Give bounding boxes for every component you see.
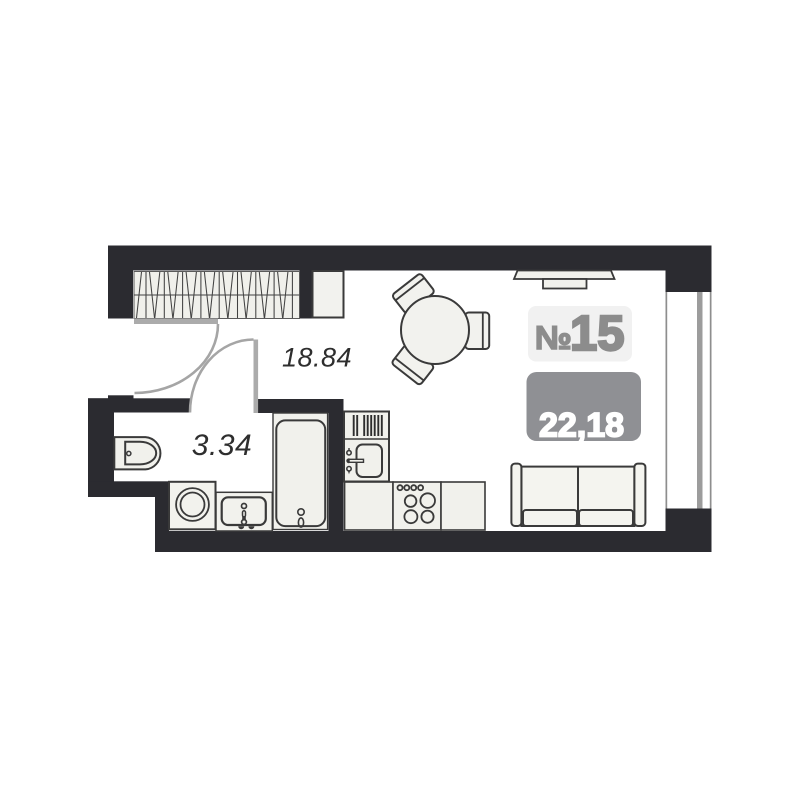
svg-text:3.34: 3.34 <box>192 429 252 462</box>
svg-text:№: № <box>535 319 572 356</box>
svg-text:15: 15 <box>570 307 625 361</box>
svg-text:18.84: 18.84 <box>282 343 352 373</box>
svg-text:22,18: 22,18 <box>539 407 624 445</box>
